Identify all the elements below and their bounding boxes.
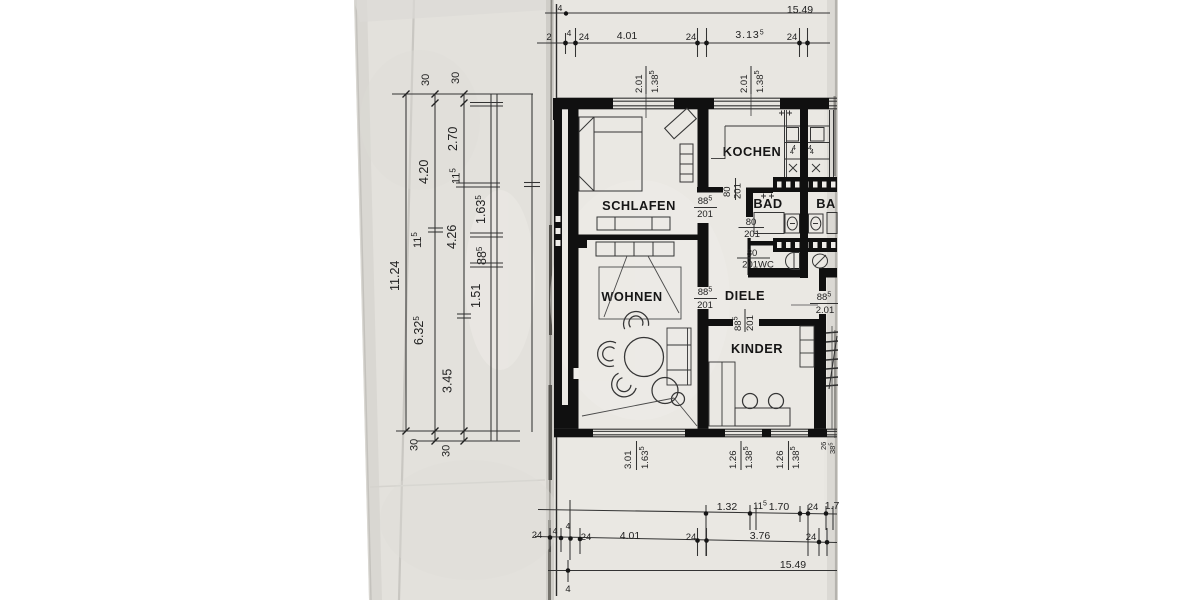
svg-text:24: 24	[808, 502, 819, 513]
svg-text:4: 4	[566, 521, 571, 531]
svg-text:201: 201	[744, 229, 760, 240]
svg-text:1.26: 1.26	[775, 451, 786, 470]
svg-text:2.70: 2.70	[446, 127, 460, 151]
svg-text:24: 24	[787, 32, 798, 43]
svg-text:201WC: 201WC	[742, 260, 774, 271]
svg-text:30: 30	[420, 74, 432, 86]
svg-text:15.49: 15.49	[780, 559, 806, 571]
svg-text:80: 80	[746, 217, 757, 228]
svg-text:BA: BA	[816, 196, 835, 211]
svg-text:24: 24	[532, 530, 543, 541]
svg-text:2.01: 2.01	[816, 305, 835, 316]
svg-text:3.76: 3.76	[750, 530, 771, 542]
svg-text:30: 30	[441, 445, 453, 457]
svg-text:4.01: 4.01	[617, 30, 638, 42]
svg-text:4: 4	[558, 3, 563, 13]
svg-text:1.7: 1.7	[825, 500, 840, 512]
svg-text:201: 201	[745, 315, 756, 331]
svg-text:24: 24	[579, 32, 590, 43]
svg-text:KOCHEN: KOCHEN	[723, 144, 781, 159]
svg-text:DIELE: DIELE	[725, 288, 765, 303]
svg-text:4.26: 4.26	[445, 225, 459, 249]
svg-text:2.01: 2.01	[634, 75, 645, 94]
svg-text:4: 4	[565, 584, 570, 595]
svg-text:4: 4	[792, 145, 796, 152]
svg-text:4.20: 4.20	[417, 160, 431, 184]
svg-text:BAD: BAD	[753, 196, 782, 211]
svg-text:24: 24	[806, 532, 817, 543]
svg-text:2.01: 2.01	[739, 75, 750, 94]
svg-text:1.70: 1.70	[769, 501, 790, 513]
svg-text:201: 201	[733, 183, 744, 199]
svg-text:201: 201	[697, 209, 713, 220]
svg-text:4: 4	[553, 526, 558, 536]
svg-text:24: 24	[686, 532, 697, 543]
svg-text:WOHNEN: WOHNEN	[601, 289, 662, 304]
svg-text:80: 80	[747, 248, 758, 259]
svg-text:4: 4	[567, 28, 572, 38]
svg-text:15.49: 15.49	[787, 4, 813, 16]
svg-text:26: 26	[819, 442, 828, 450]
svg-text:3.01: 3.01	[623, 451, 634, 470]
svg-text:30: 30	[450, 72, 462, 84]
svg-text:24: 24	[686, 32, 697, 43]
svg-text:1.26: 1.26	[728, 451, 739, 470]
svg-text:3.45: 3.45	[441, 369, 455, 393]
svg-text:1.32: 1.32	[717, 501, 738, 513]
svg-text:4: 4	[808, 145, 812, 152]
svg-text:SCHLAFEN: SCHLAFEN	[602, 198, 676, 213]
svg-text:30: 30	[409, 439, 421, 451]
svg-text:201: 201	[697, 300, 713, 311]
svg-text:1.51: 1.51	[469, 284, 483, 308]
svg-text:4.01: 4.01	[620, 530, 641, 542]
svg-text:24: 24	[581, 532, 592, 543]
svg-text:11.24: 11.24	[388, 261, 402, 291]
svg-text:KINDER: KINDER	[731, 341, 783, 356]
svg-text:80: 80	[722, 186, 733, 197]
svg-text:2: 2	[546, 32, 551, 43]
